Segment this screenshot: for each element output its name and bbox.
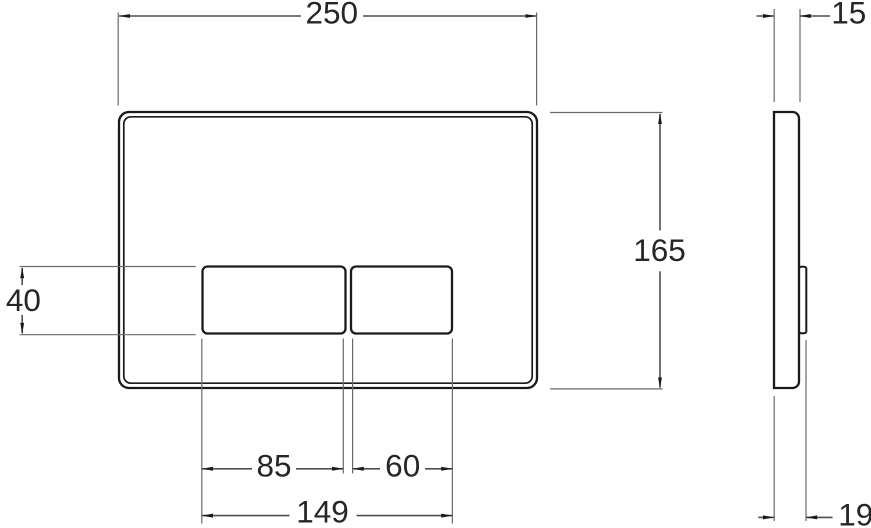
svg-text:19: 19 bbox=[838, 497, 871, 528]
svg-text:250: 250 bbox=[306, 0, 359, 30]
svg-text:149: 149 bbox=[296, 494, 349, 528]
svg-text:165: 165 bbox=[633, 232, 686, 268]
svg-text:15: 15 bbox=[831, 0, 866, 30]
svg-text:60: 60 bbox=[385, 448, 420, 484]
svg-text:40: 40 bbox=[6, 282, 41, 318]
svg-text:85: 85 bbox=[256, 448, 291, 484]
